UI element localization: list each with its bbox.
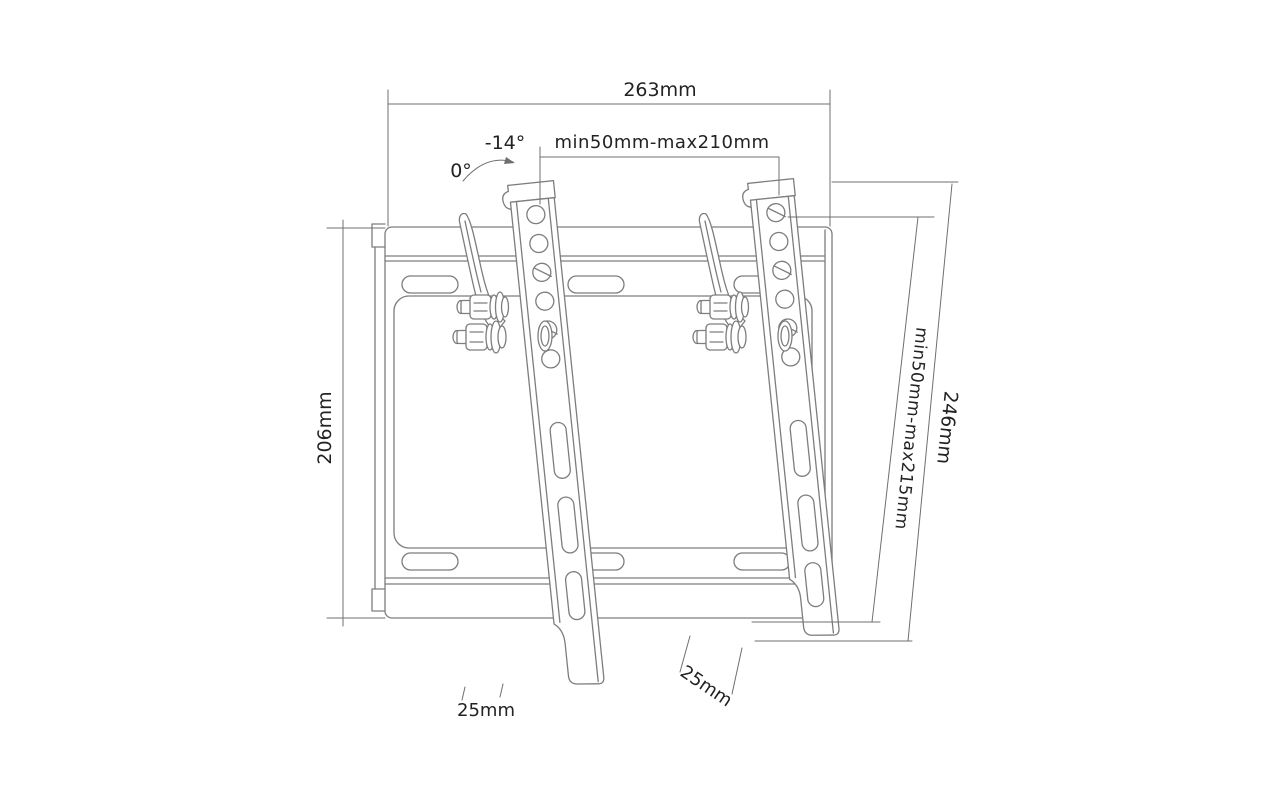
label-tilt-angle-zero: 0°: [450, 160, 472, 182]
right-rail-washer: [778, 321, 792, 351]
plate-left-flange-top-tab: [372, 224, 385, 247]
label-height-total: 206mm: [314, 391, 336, 464]
dim-left-tab: [462, 684, 503, 700]
wall-slot: [734, 553, 790, 570]
wall-slot: [402, 276, 458, 293]
wall-slot: [402, 553, 458, 570]
technical-drawing-tv-wall-mount: 263mm -14° 0° min50mm-max210mm 206mm min…: [0, 0, 1280, 800]
plate-left-flange-bottom-tab: [372, 589, 385, 611]
drawing-canvas: 263mm -14° 0° min50mm-max210mm 206mm min…: [0, 0, 1280, 800]
label-right-tab-width: 25mm: [676, 662, 736, 712]
label-width-total: 263mm: [623, 79, 696, 101]
label-left-tab-width: 25mm: [457, 700, 515, 721]
label-vesa-width-range: min50mm-max210mm: [554, 132, 769, 153]
label-tilt-angle-max: -14°: [485, 132, 526, 154]
left-rail-washer: [538, 321, 552, 351]
label-vesa-height-range: min50mm-max215mm: [890, 326, 931, 531]
wall-slot: [568, 276, 624, 293]
label-bracket-length: 246mm: [932, 390, 962, 465]
